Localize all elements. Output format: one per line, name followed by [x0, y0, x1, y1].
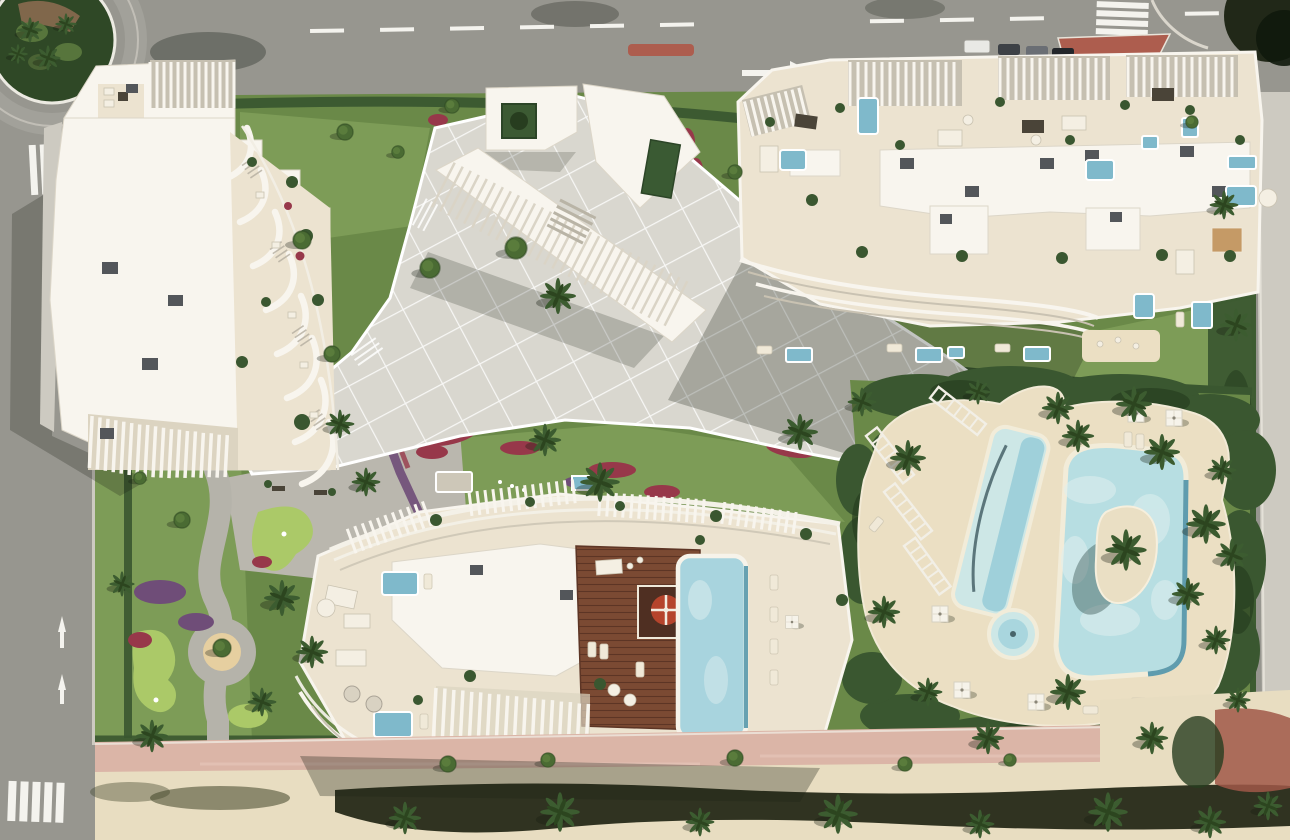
- red-curb-strip: [628, 44, 694, 56]
- bench: [314, 490, 327, 495]
- road-tree-shadow: [531, 1, 619, 27]
- bench: [272, 486, 285, 491]
- winding-garden-path: [209, 470, 222, 744]
- masterplan-svg: [0, 0, 1290, 840]
- plunge-pool: [382, 572, 418, 595]
- south-rooftop-pool: [678, 556, 746, 738]
- pergola-slats: [150, 62, 234, 108]
- core-wing: [930, 206, 988, 254]
- garden-pergola-table: [436, 472, 472, 492]
- aerial-render-stage: [0, 0, 1290, 840]
- beach-structure: [1215, 708, 1290, 792]
- plunge-pool: [374, 712, 412, 737]
